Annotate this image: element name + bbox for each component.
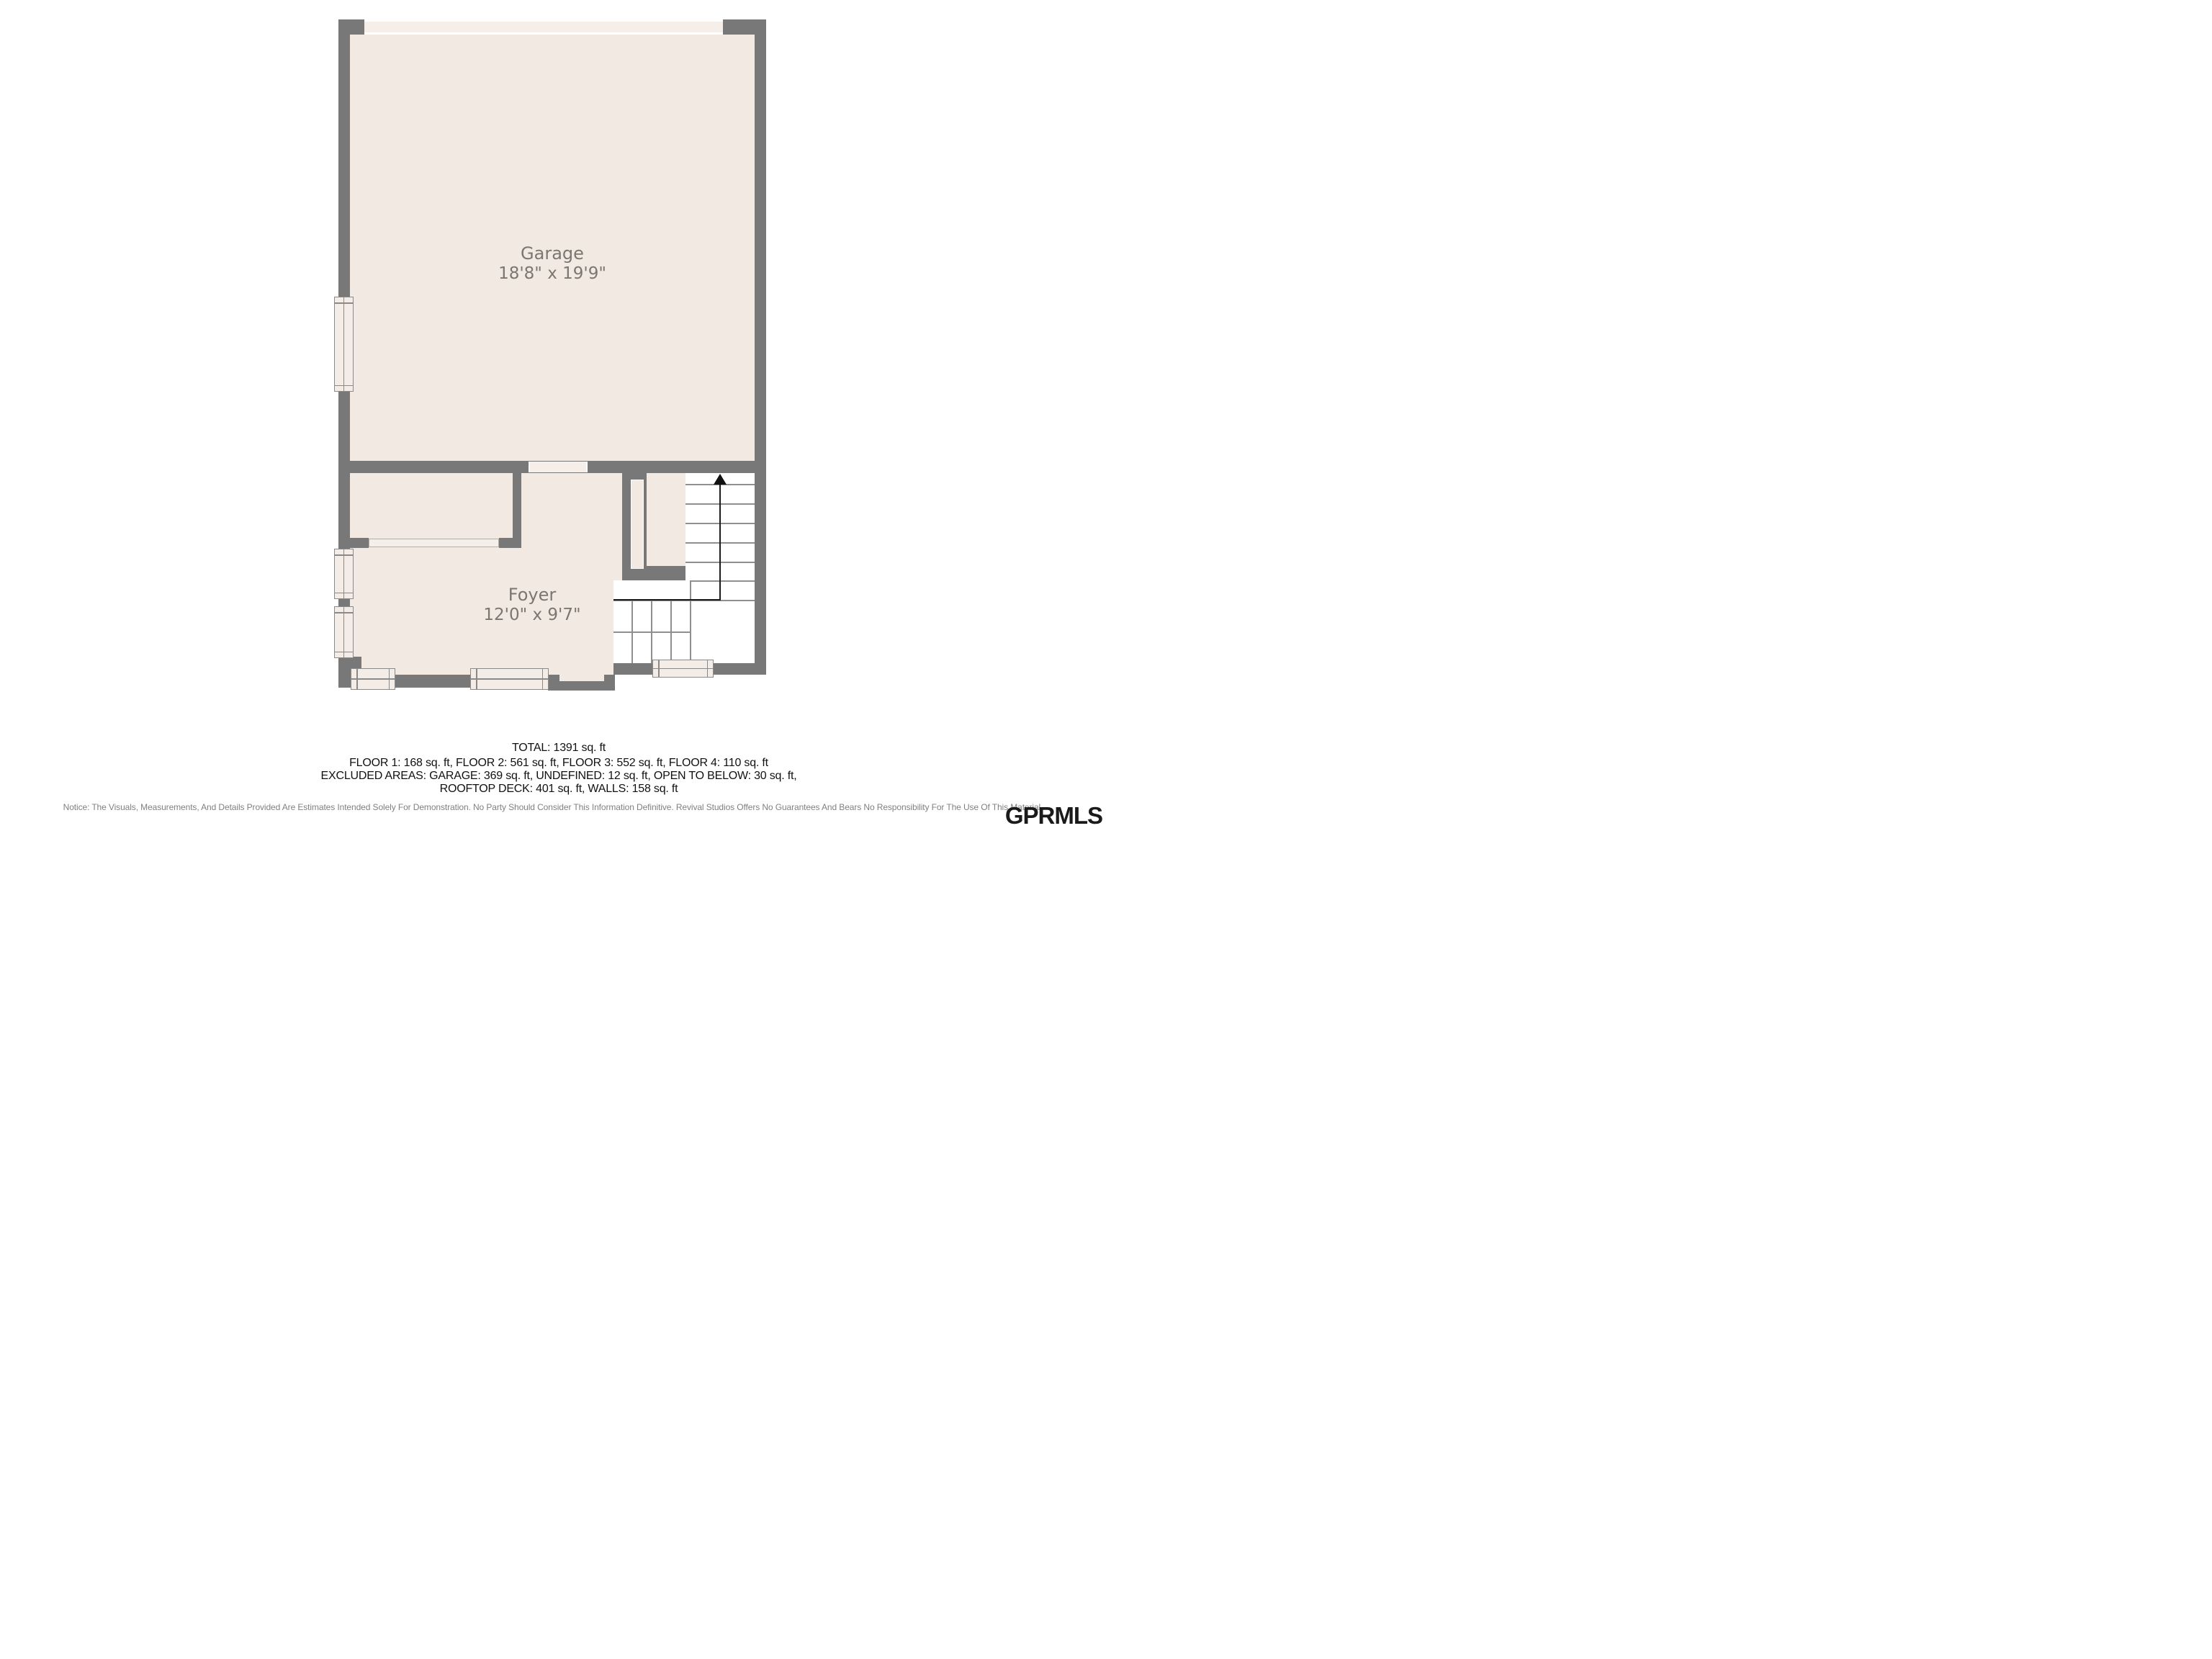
stair-tread-line [690, 580, 755, 582]
window-mullion [471, 678, 548, 680]
stair-path-line [719, 478, 721, 601]
garage-left-window [334, 297, 354, 392]
window-mullion [653, 668, 713, 670]
alcove-opening-right-stub [499, 538, 521, 548]
room-dimensions: 18'8" x 19'9" [498, 264, 606, 283]
garage-foyer-opening [529, 462, 588, 472]
right-exterior-wall [755, 19, 766, 675]
undefined-shaft [631, 480, 644, 569]
room-name: Foyer [483, 585, 580, 606]
gprmls-logo: GPRMLS [1005, 802, 1102, 829]
window-mullion [343, 549, 345, 598]
foyer-left-lower-window [334, 606, 354, 658]
landing-grid-line [651, 600, 652, 663]
front-entry-door [559, 675, 604, 681]
room-name: Garage [498, 244, 606, 264]
window-sill [476, 669, 477, 689]
window-sill [335, 612, 353, 613]
alcove-right-wall [513, 473, 521, 548]
excluded-areas-text: EXCLUDED AREAS: GARAGE: 369 sq. ft, UNDE… [12, 770, 1106, 783]
window-sill [335, 652, 353, 653]
floor-plan-page: Garage 18'8" x 19'9" Foyer 12'0" x 9'7" … [0, 0, 1106, 829]
alcove-opening-left-stub [350, 538, 369, 548]
top-left-corner-post [338, 19, 364, 35]
stair-closet-floor [647, 473, 691, 566]
stair-path-line [613, 599, 720, 601]
window-sill [707, 660, 709, 677]
window-sill [335, 302, 353, 304]
window-sill [335, 554, 353, 556]
window-sill [335, 593, 353, 594]
landing-grid-line [690, 580, 691, 663]
window-sill [542, 669, 544, 689]
stair-bottom-window [652, 660, 714, 678]
landing-grid-line [670, 600, 672, 663]
total-area-text: TOTAL: 1391 sq. ft [12, 742, 1106, 755]
window-sill [389, 669, 390, 689]
window-sill [335, 385, 353, 387]
alcove-floor [350, 473, 513, 538]
garage-door-opening [364, 19, 723, 35]
landing-grid-line [631, 600, 633, 663]
foyer-bottom-small-window [351, 668, 395, 690]
window-mullion [343, 297, 345, 391]
foyer-left-upper-window [334, 549, 354, 599]
foyer-floor-upper-right [521, 473, 622, 538]
disclaimer-notice: Notice: The Visuals, Measurements, And D… [0, 802, 1106, 812]
room-dimensions: 12'0" x 9'7" [483, 606, 580, 624]
excluded-areas-text-2: ROOFTOP DECK: 401 sq. ft, WALLS: 158 sq.… [12, 783, 1106, 796]
window-sill [658, 660, 660, 677]
garage-label: Garage 18'8" x 19'9" [498, 244, 606, 283]
window-sill [356, 669, 358, 689]
window-mullion [343, 607, 345, 657]
foyer-label: Foyer 12'0" x 9'7" [483, 585, 580, 624]
foyer-bottom-wide-window [470, 668, 549, 690]
alcove-cased-opening [369, 539, 499, 547]
stair-landing [613, 580, 755, 663]
stairs-up-arrow-icon [714, 474, 727, 485]
floor-areas-text: FLOOR 1: 168 sq. ft, FLOOR 2: 561 sq. ft… [12, 757, 1106, 770]
